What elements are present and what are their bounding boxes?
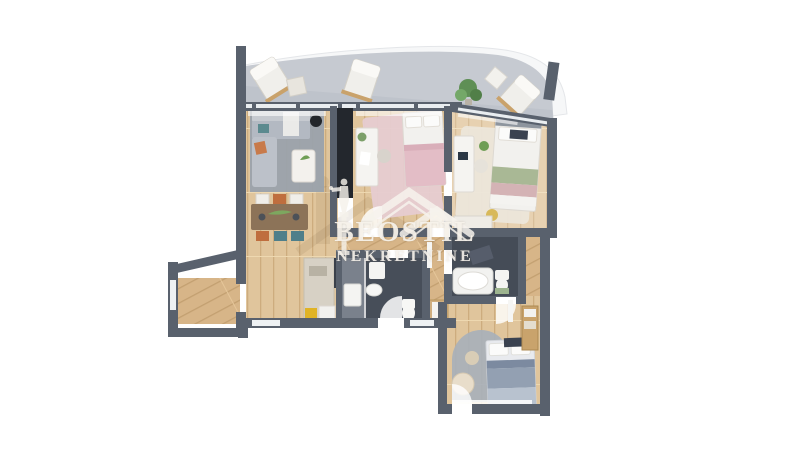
washing-machine [344, 284, 361, 306]
round-side-table [465, 351, 479, 365]
toilet-icon [402, 299, 415, 321]
desk-paper [359, 151, 371, 165]
wall-niche-top [168, 250, 238, 275]
floor-plan-svg [0, 0, 800, 450]
sofa-cushion-teal [258, 124, 269, 133]
wall-living-bed2 [330, 106, 337, 230]
sink [366, 284, 382, 296]
dining-chair-top [256, 194, 269, 204]
wall-top-left-stub [236, 46, 246, 108]
floor-lamp [310, 115, 322, 127]
wardrobe [454, 216, 492, 230]
black-closet [337, 108, 353, 198]
wall-east-lower [540, 236, 550, 416]
desk-laptop [458, 152, 468, 160]
bathtub [453, 268, 493, 294]
wall-bed4-left [438, 302, 447, 412]
desk-plant [479, 141, 489, 151]
wall-bathB-right [518, 237, 526, 304]
dining-chair-top [273, 194, 286, 204]
curtain [248, 111, 326, 116]
dining-chair-bottom [274, 231, 287, 241]
balcony-niche-floor [178, 278, 240, 324]
wall-bathA-left [336, 250, 342, 320]
desk-plant [358, 133, 367, 142]
dining-chair-bottom [256, 231, 269, 241]
window-glazing [246, 104, 456, 108]
wall-bed2-bed3 [444, 106, 452, 172]
terrace-side-table [287, 76, 307, 96]
bathroom-main [342, 258, 422, 321]
desk [454, 136, 474, 192]
bed [402, 111, 446, 187]
corridor-east-floor [526, 237, 540, 304]
shelf-box [524, 309, 536, 317]
bedroom-right [454, 112, 542, 230]
shelf-box [524, 321, 536, 329]
towel-rack [369, 262, 385, 279]
desk-chair [474, 159, 488, 173]
wall-bathA-top [336, 250, 428, 258]
dining-chair-bottom [291, 231, 304, 241]
wall-east-upper [547, 118, 557, 238]
dining-chair-top [290, 194, 303, 204]
white-cabinet [319, 306, 335, 320]
floor-plan-image: BEOSTIL NEKRETNINE [0, 0, 800, 450]
door-leaf [427, 242, 432, 268]
counter-item [309, 266, 327, 276]
curtain [356, 111, 442, 116]
yellow-crate [305, 308, 317, 319]
table-knob [259, 214, 266, 221]
door-leaf [508, 300, 513, 322]
coffee-table [292, 150, 315, 182]
desk-chair [377, 149, 391, 163]
bathroom-second [452, 237, 518, 296]
bed [490, 116, 542, 211]
wall-niche-bottom [168, 328, 248, 337]
table-knob [293, 214, 300, 221]
green-shelf [495, 288, 509, 294]
